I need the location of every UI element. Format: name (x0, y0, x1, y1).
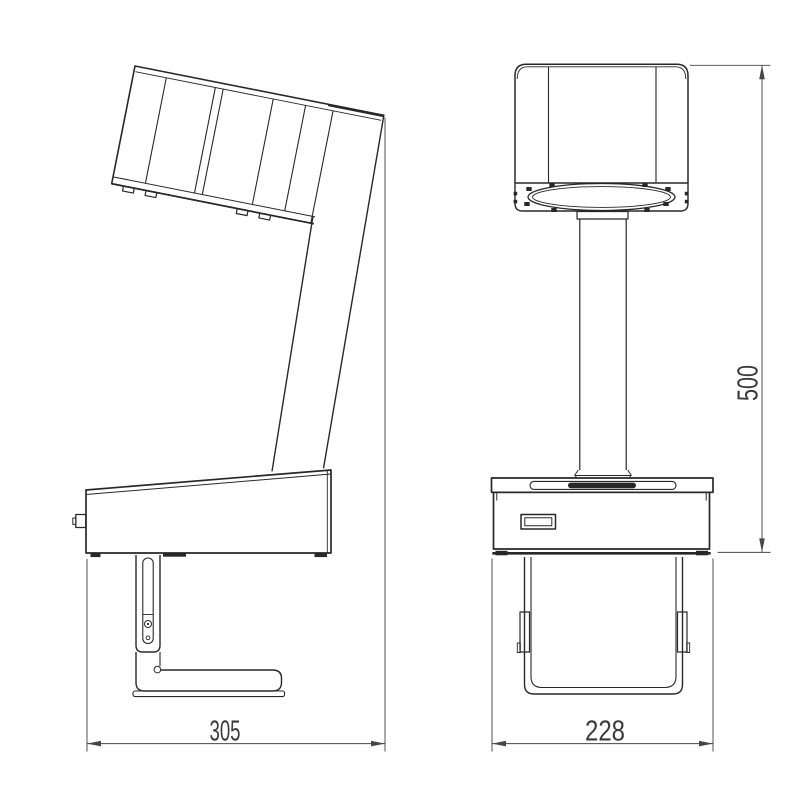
base-foot (91, 553, 101, 557)
lens-screw (663, 202, 668, 206)
lens-screw (665, 187, 670, 191)
lens-ring-inner (533, 187, 671, 208)
clamp-rail (136, 555, 160, 652)
side-view (73, 66, 384, 697)
clamp-foot (136, 652, 282, 691)
bracket-clip-step (687, 643, 690, 653)
head-face-lines (549, 67, 657, 183)
bracket-outer (525, 557, 683, 694)
lens-ring-outer (528, 184, 675, 211)
base-foot (163, 553, 186, 556)
clamp-screw-small (146, 636, 150, 640)
dimension-height: 500 (690, 65, 771, 552)
flange-edge-nub (685, 192, 689, 196)
power-plug (76, 515, 86, 528)
head-outline (515, 64, 688, 183)
lens-screw (526, 187, 531, 191)
head-top-inner-line (135, 72, 381, 121)
flange-edge-nub (685, 200, 689, 204)
column-collar (577, 212, 628, 220)
base-outline (86, 470, 331, 553)
arrowhead-right (371, 741, 385, 747)
side-head (111, 66, 384, 238)
side-base (73, 470, 331, 557)
clamp-notch (154, 666, 161, 673)
base-foot (315, 553, 328, 557)
technical-drawing-page: 305 228 500 (0, 0, 800, 800)
base-body (494, 492, 710, 549)
dimension-width-value: 228 (585, 716, 625, 748)
bracket-plate (531, 557, 676, 688)
base-label-inner (525, 518, 552, 526)
column-flare (575, 470, 632, 478)
clamp-screw-center (147, 623, 149, 625)
side-arm (272, 115, 384, 472)
front-bracket (517, 557, 689, 694)
flange-edge-nub (514, 192, 518, 196)
base-corner-foot (496, 551, 508, 556)
base-slot-insert (568, 483, 636, 489)
clamp-foot-plate (133, 691, 285, 697)
base-top-inner-line (86, 474, 331, 495)
power-plug-pin (73, 518, 76, 524)
lens-screw (642, 183, 647, 187)
dimension-height-value: 500 (733, 365, 765, 401)
dimension-depth-value: 305 (210, 716, 241, 748)
head-top-inner-line (517, 67, 686, 79)
head-bottom-edge (112, 184, 314, 224)
arrowhead-bottom (759, 538, 765, 552)
base-step-notches (497, 492, 706, 500)
clamp-slot (143, 558, 153, 644)
front-base (492, 478, 714, 555)
column (580, 219, 626, 470)
arrowhead-right (699, 741, 713, 747)
side-clamp (133, 555, 285, 697)
lens-screw (551, 208, 556, 212)
lens-screw (549, 183, 554, 187)
front-view (492, 64, 714, 694)
base-corner-foot (696, 551, 708, 556)
arrowhead-left (87, 741, 101, 747)
base-label-outer (521, 515, 556, 530)
drawing-canvas: 305 228 500 (0, 0, 800, 800)
head-top-edge-thick (328, 105, 384, 116)
flange-edge-nub (514, 200, 518, 204)
lens-flange (515, 183, 688, 211)
front-head (514, 64, 689, 478)
lens-screw (644, 208, 649, 212)
arrowhead-left (492, 741, 506, 747)
arrowhead-top (759, 65, 765, 79)
lens-screw (524, 202, 529, 206)
bracket-clip-step (517, 643, 520, 653)
